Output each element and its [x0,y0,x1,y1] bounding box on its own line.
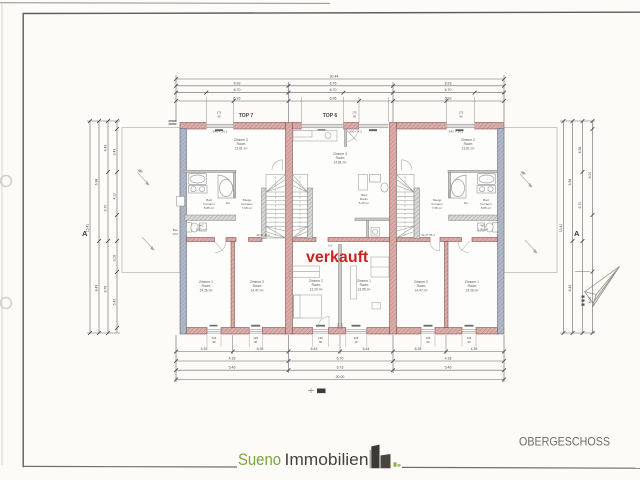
svg-text:6.70: 6.70 [330,88,337,92]
svg-text:Sueno: Sueno [238,450,281,469]
svg-text:6.95: 6.95 [330,97,337,101]
svg-text:4.35: 4.35 [471,347,478,351]
svg-text:A: A [82,229,88,238]
svg-text:14.81 m²: 14.81 m² [333,160,347,164]
svg-text:4.43: 4.43 [104,145,108,152]
svg-text:6.44: 6.44 [311,347,318,351]
svg-text:13.81 m²: 13.81 m² [461,146,475,150]
svg-text:90: 90 [353,115,356,119]
svg-text:3.05: 3.05 [113,255,117,262]
svg-text:Immobilien: Immobilien [285,450,369,469]
svg-text:13.85 m²: 13.85 m² [357,287,371,291]
svg-text:90: 90 [218,115,221,119]
svg-text:20.00: 20.00 [336,375,345,379]
svg-text:8.76: 8.76 [104,286,108,293]
svg-text:5.85 m²: 5.85 m² [204,206,215,210]
svg-text:7.05 m²: 7.05 m² [242,206,253,210]
svg-text:4.10: 4.10 [113,193,117,200]
svg-text:6.73: 6.73 [337,366,344,370]
svg-text:3.43: 3.43 [113,149,117,156]
svg-text:175: 175 [352,111,357,115]
svg-text:940 + 14.2: 940 + 14.2 [213,130,228,134]
svg-text:175: 175 [459,111,464,115]
svg-text:5.45 m²: 5.45 m² [359,201,370,205]
svg-text:13.20 m²: 13.20 m² [309,287,323,291]
svg-text:14.47 m²: 14.47 m² [250,288,264,292]
svg-text:6.98: 6.98 [568,179,572,186]
svg-text:90: 90 [426,340,430,344]
svg-text:15.41: 15.41 [559,224,563,233]
svg-text:6.70: 6.70 [104,205,108,212]
svg-text:6.70: 6.70 [234,88,241,92]
svg-text:4.38: 4.38 [578,147,582,154]
svg-text:8.00: 8.00 [588,172,592,179]
svg-text:6.46: 6.46 [445,366,452,370]
svg-text:6.35: 6.35 [257,347,264,351]
svg-text:4.00: 4.00 [588,297,592,304]
svg-text:4.35: 4.35 [201,347,208,351]
svg-text:Du: Du [226,201,230,205]
svg-text:14.2: 14.2 [172,232,178,236]
svg-text:6.93: 6.93 [234,97,241,101]
svg-text:8.43: 8.43 [95,285,99,292]
svg-text:14.47 m²: 14.47 m² [414,288,428,292]
svg-text:1.85 m²: 1.85 m² [478,228,488,232]
svg-text:20.44: 20.44 [330,75,339,79]
svg-text:TOP 7: TOP 7 [239,113,254,119]
svg-text:6.70: 6.70 [337,357,344,361]
svg-text:8.93: 8.93 [445,81,452,85]
svg-text:5.42: 5.42 [113,299,117,306]
svg-text:verkauft: verkauft [306,249,369,266]
svg-text:90: 90 [319,340,323,344]
svg-text:Du: Du [464,201,468,205]
svg-text:8.76: 8.76 [330,81,337,85]
svg-text:OBERGESCHOSS: OBERGESCHOSS [519,435,610,449]
svg-text:4.18: 4.18 [445,357,452,361]
svg-text:6.70: 6.70 [578,202,582,209]
svg-text:90: 90 [460,115,463,119]
svg-text:6.93: 6.93 [445,97,452,101]
svg-text:8.93: 8.93 [234,81,241,85]
svg-text:5.85 m²: 5.85 m² [481,206,492,210]
svg-text:40.47 45.4: 40.47 45.4 [421,233,435,237]
svg-text:6.98: 6.98 [95,179,99,186]
svg-text:-300 + 4.2: -300 + 4.2 [348,130,362,134]
svg-text:TOP 6: TOP 6 [323,113,338,119]
svg-text:6.70: 6.70 [445,88,452,92]
svg-text:175: 175 [217,111,222,115]
svg-text:7.05 m²: 7.05 m² [432,206,443,210]
svg-text:14.26 m²: 14.26 m² [199,288,213,292]
svg-text:90: 90 [254,340,258,344]
svg-text:1.85 m²: 1.85 m² [196,228,206,232]
svg-text:90: 90 [467,340,471,344]
svg-text:6.46: 6.46 [229,366,236,370]
svg-text:6.44: 6.44 [363,347,370,351]
svg-text:A: A [574,229,580,238]
svg-text:49.41 45.2: 49.41 45.2 [256,233,270,237]
svg-text:14.26 m²: 14.26 m² [465,288,479,292]
svg-text:90: 90 [212,340,216,344]
svg-text:940 + 14.2: 940 + 14.2 [449,130,464,134]
svg-text:6.35: 6.35 [415,347,422,351]
svg-text:4.18: 4.18 [229,357,236,361]
svg-text:8.43: 8.43 [568,285,572,292]
svg-text:10: 10 [354,340,358,344]
svg-text:13.81 m²: 13.81 m² [234,146,248,150]
svg-text:0.9: 0.9 [328,244,332,248]
